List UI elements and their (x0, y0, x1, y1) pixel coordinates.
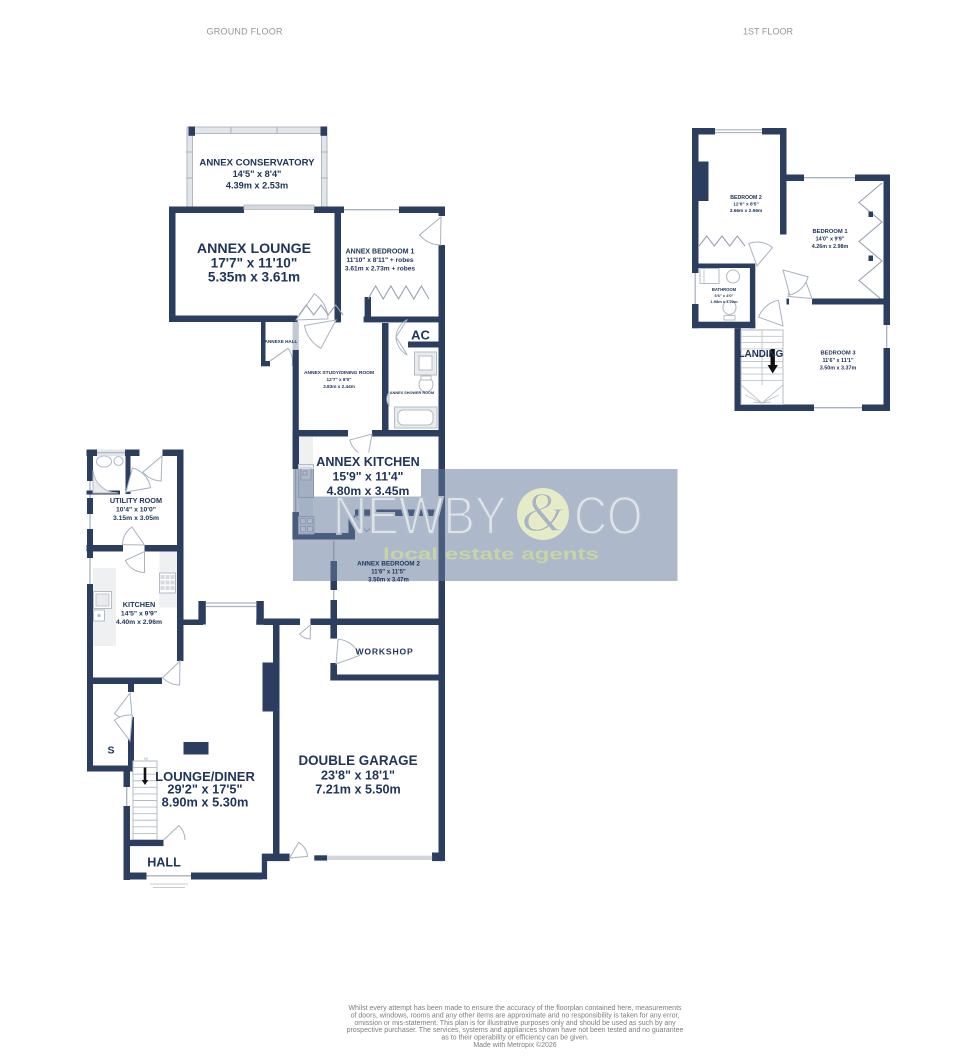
svg-text:UTILITY ROOM: UTILITY ROOM (110, 496, 162, 505)
svg-text:WORKSHOP: WORKSHOP (356, 647, 414, 657)
svg-text:14'0" x 9'9": 14'0" x 9'9" (816, 237, 845, 243)
svg-text:14'5" x 9'9": 14'5" x 9'9" (121, 611, 157, 618)
svg-text:ANNEX STUDY/DINING ROOM: ANNEX STUDY/DINING ROOM (304, 370, 374, 376)
svg-text:4.40m x 2.96m: 4.40m x 2.96m (116, 619, 162, 626)
svg-text:BEDROOM 1: BEDROOM 1 (812, 229, 848, 235)
svg-text:3.61m x 2.73m + robes: 3.61m x 2.73m + robes (345, 266, 416, 273)
svg-text:11'6" x 11'1": 11'6" x 11'1" (822, 358, 854, 364)
svg-text:KITCHEN: KITCHEN (123, 600, 155, 609)
svg-text:11'10" x 8'11" + robes: 11'10" x 8'11" + robes (346, 257, 413, 264)
svg-text:12'0" x 8'5": 12'0" x 8'5" (733, 202, 759, 208)
svg-text:3.83m x 2.44m: 3.83m x 2.44m (323, 384, 355, 389)
svg-text:4.26m x 2.98m: 4.26m x 2.98m (812, 244, 849, 250)
svg-text:1ST FLOOR: 1ST FLOOR (743, 27, 794, 37)
svg-text:as to their operability or eff: as to their operability or efficiency ca… (441, 1035, 588, 1042)
svg-text:10'4" x 10'0": 10'4" x 10'0" (116, 507, 156, 514)
svg-text:8.90m x 5.30m: 8.90m x 5.30m (162, 795, 249, 810)
svg-text:4.80m x 3.45m: 4.80m x 3.45m (327, 484, 410, 498)
svg-text:&: & (521, 482, 565, 544)
svg-text:AC: AC (411, 328, 430, 343)
svg-text:BATHROOM: BATHROOM (712, 287, 737, 292)
svg-text:omission or mis-statement. Thi: omission or mis-statement. This plan is … (354, 1020, 676, 1027)
svg-text:11'6" x 11'5": 11'6" x 11'5" (371, 570, 406, 576)
svg-text:15'9" x 11'4": 15'9" x 11'4" (333, 470, 404, 484)
svg-text:ANNEX BEDROOM 2: ANNEX BEDROOM 2 (357, 561, 420, 568)
svg-text:6'6" x 4'0": 6'6" x 4'0" (714, 293, 733, 298)
svg-text:Made with Metropix ©2026: Made with Metropix ©2026 (473, 1041, 556, 1049)
svg-text:14'5" x 8'4": 14'5" x 8'4" (233, 169, 282, 179)
svg-text:7.21m x 5.50m: 7.21m x 5.50m (315, 783, 400, 797)
svg-text:12'7" x 8'0": 12'7" x 8'0" (327, 377, 352, 382)
svg-text:3.66m x 2.56m: 3.66m x 2.56m (730, 208, 763, 214)
svg-text:GROUND FLOOR: GROUND FLOOR (207, 27, 284, 37)
svg-text:3.50m x 3.37m: 3.50m x 3.37m (820, 366, 857, 372)
svg-text:3.50m x 3.47m: 3.50m x 3.47m (368, 578, 409, 584)
svg-text:ANNEX KITCHEN: ANNEX KITCHEN (316, 455, 420, 469)
svg-text:ANNEX BEDROOM 1: ANNEX BEDROOM 1 (346, 249, 415, 256)
svg-text:Whilst every attempt has been: Whilst every attempt has been made to en… (348, 1005, 682, 1012)
svg-text:CO: CO (574, 486, 643, 546)
svg-text:17'7" x 11'10": 17'7" x 11'10" (211, 256, 298, 271)
svg-text:23'8" x 18'1": 23'8" x 18'1" (321, 769, 395, 783)
svg-text:up: up (144, 756, 149, 761)
svg-text:BEDROOM 3: BEDROOM 3 (820, 351, 856, 357)
svg-text:5.35m x 3.61m: 5.35m x 3.61m (208, 270, 300, 285)
svg-text:HALL: HALL (147, 856, 181, 870)
svg-text:LANDING: LANDING (739, 349, 784, 360)
svg-text:prospective purchaser. The ser: prospective purchaser. The services, sys… (347, 1027, 684, 1034)
svg-text:ANNEXE HALL: ANNEXE HALL (265, 339, 298, 344)
svg-text:of doors, windows, rooms and a: of doors, windows, rooms and any other i… (351, 1012, 680, 1019)
svg-text:DOUBLE GARAGE: DOUBLE GARAGE (298, 753, 417, 768)
svg-text:ANNEX SHOWER ROOM: ANNEX SHOWER ROOM (390, 391, 434, 395)
svg-text:3.15m x 3.05m: 3.15m x 3.05m (113, 515, 159, 522)
svg-text:BEDROOM 2: BEDROOM 2 (730, 195, 762, 201)
svg-text:ANNEX CONSERVATORY: ANNEX CONSERVATORY (199, 158, 315, 169)
svg-text:4.39m x 2.53m: 4.39m x 2.53m (226, 181, 288, 191)
svg-text:1.98m x 1.22m: 1.98m x 1.22m (710, 299, 738, 304)
svg-text:S: S (107, 745, 114, 757)
